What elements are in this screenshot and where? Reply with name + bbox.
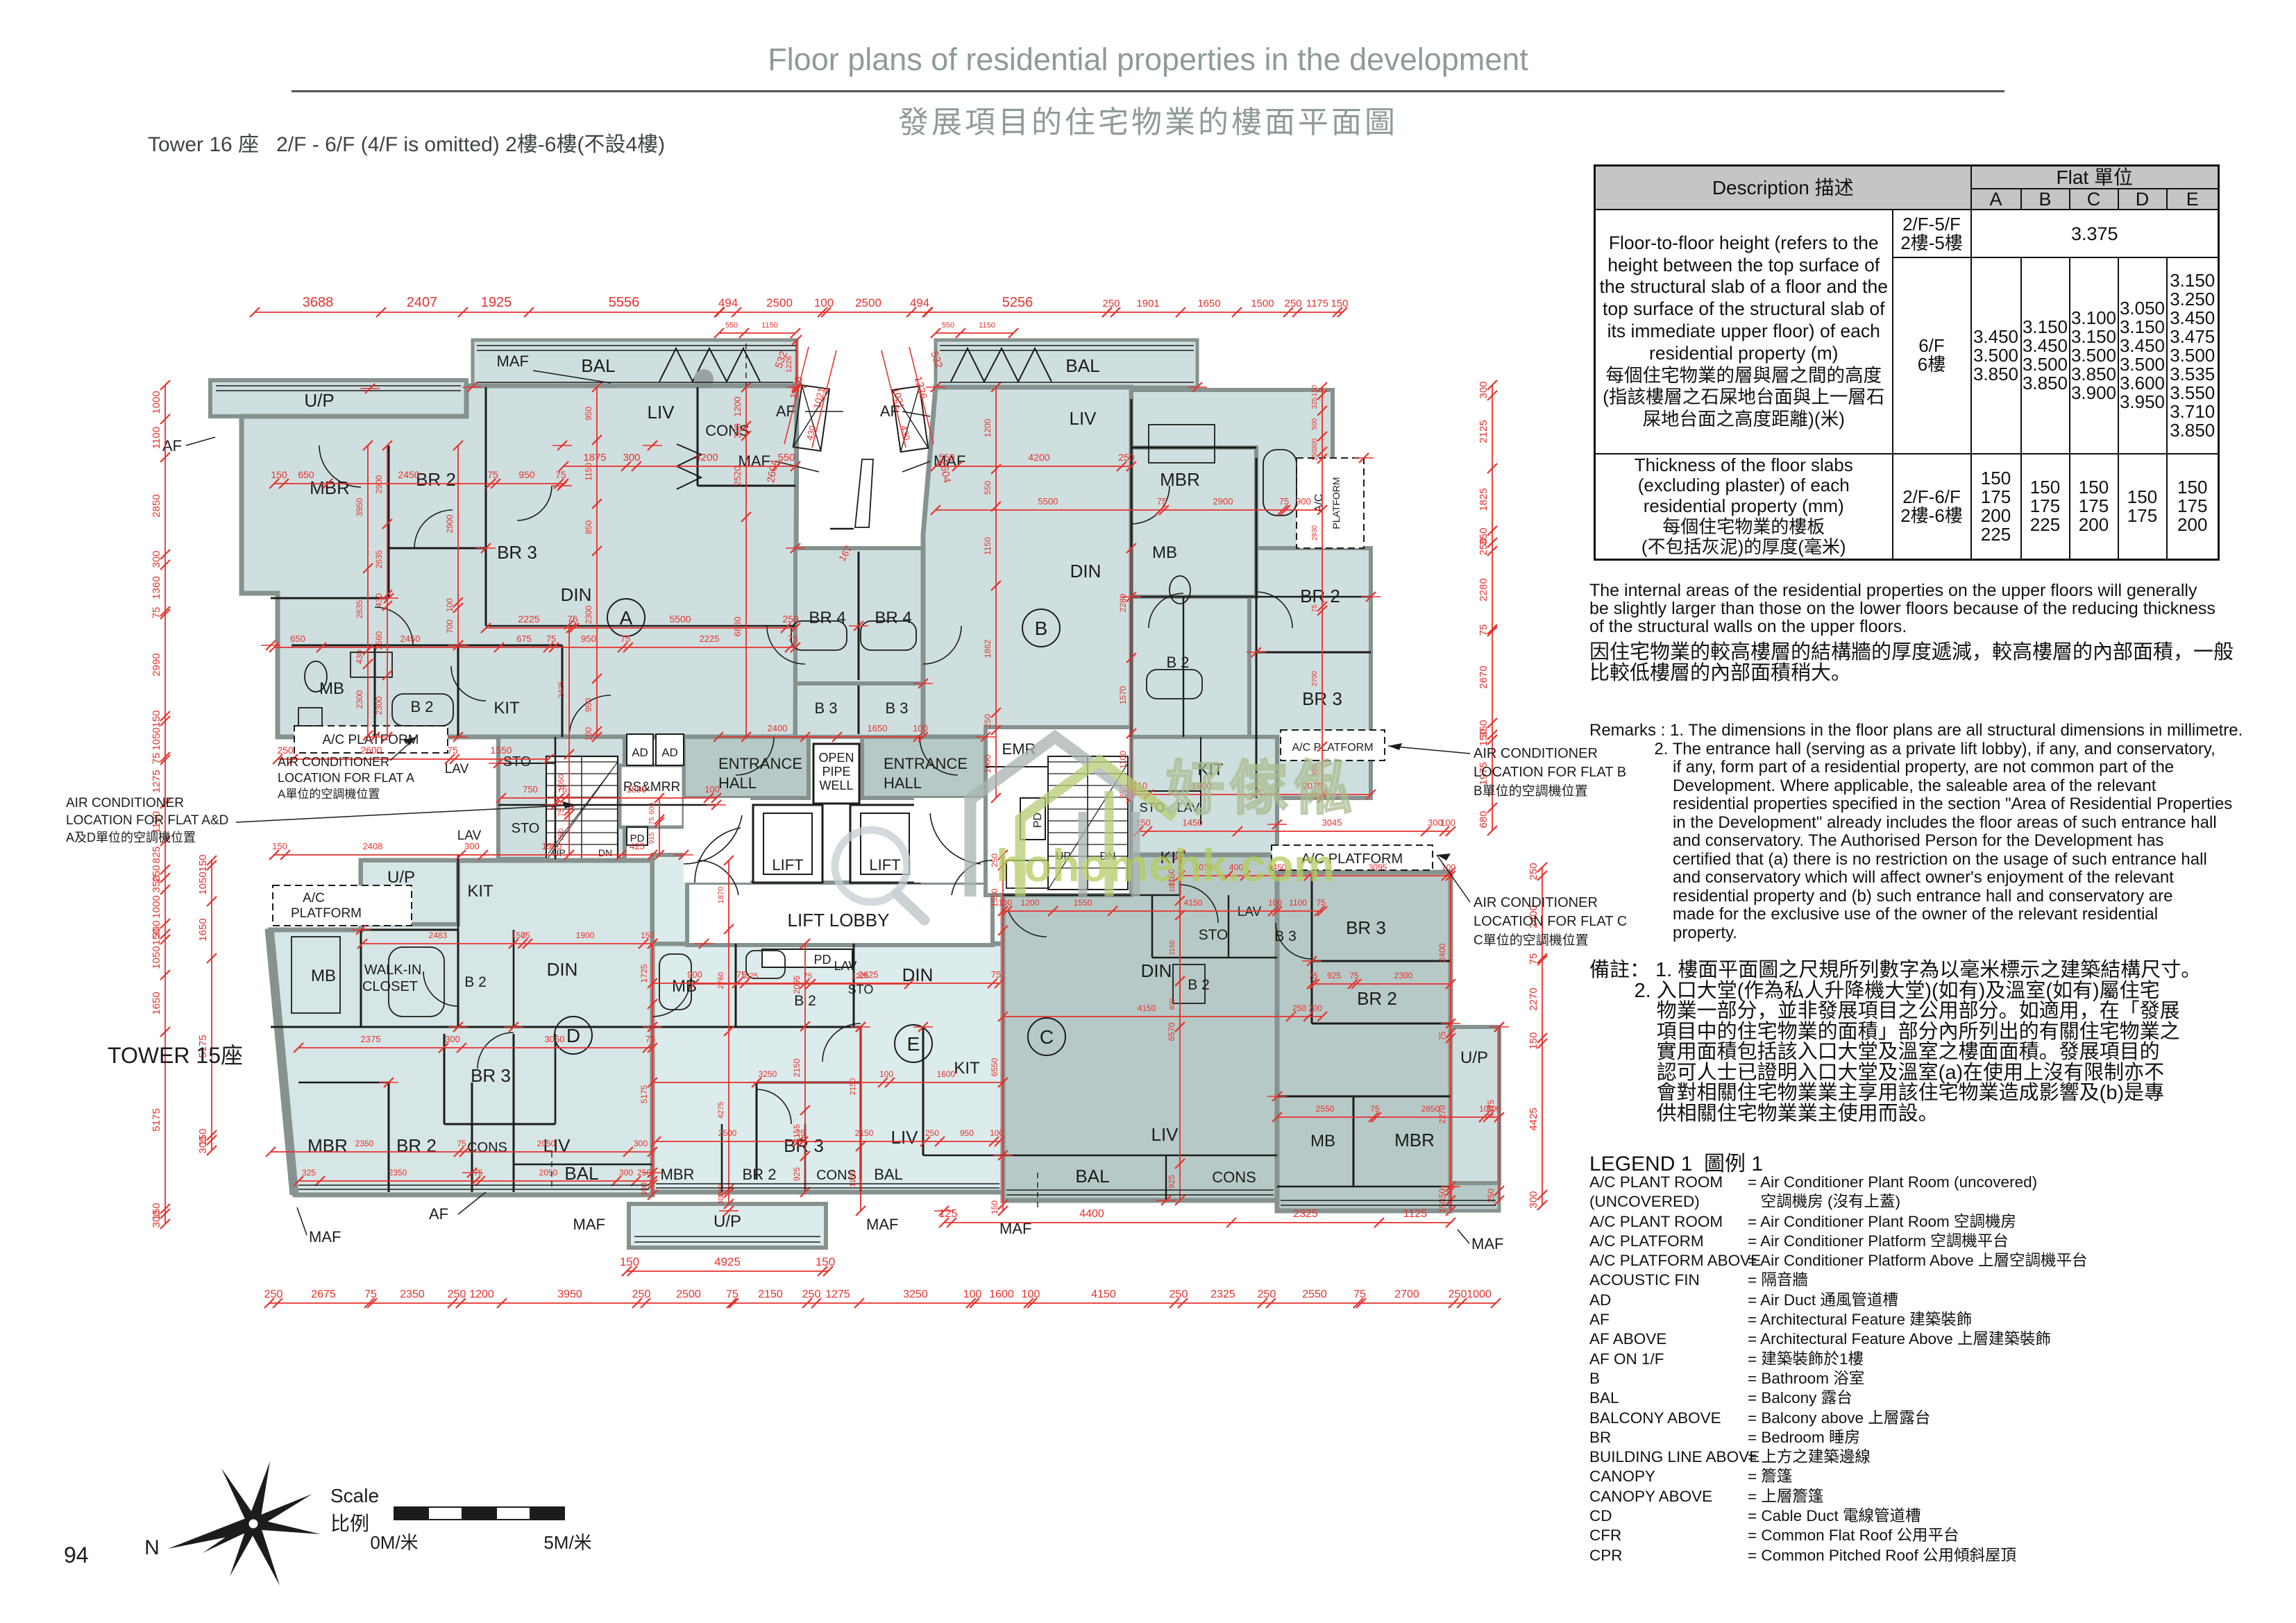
svg-text:94: 94 (64, 1543, 89, 1567)
svg-text:550: 550 (725, 321, 738, 330)
svg-text:DIN: DIN (1141, 960, 1172, 981)
svg-text:2483: 2483 (429, 931, 448, 940)
svg-text:75: 75 (151, 753, 162, 765)
svg-text:2225: 2225 (518, 613, 539, 624)
svg-text:CONS: CONS (467, 1140, 507, 1155)
svg-text:5175: 5175 (639, 1085, 649, 1103)
svg-text:100: 100 (445, 598, 455, 612)
svg-text:CONS: CONS (705, 422, 750, 439)
svg-text:150: 150 (272, 841, 287, 851)
svg-text:MAF: MAF (309, 1228, 341, 1246)
svg-text:AIR CONDITIONER: AIR CONDITIONER (66, 796, 184, 810)
svg-text:3095: 3095 (1369, 863, 1387, 872)
svg-text:915: 915 (648, 832, 656, 844)
svg-text:100: 100 (814, 296, 834, 309)
svg-text:A單位的空調機位置: A單位的空調機位置 (278, 788, 380, 801)
svg-text:750: 750 (557, 829, 566, 841)
svg-text:75: 75 (788, 634, 797, 644)
svg-text:250: 250 (1118, 452, 1135, 463)
svg-text:比例: 比例 (330, 1513, 369, 1534)
svg-text:75: 75 (645, 1034, 655, 1044)
svg-text:A: A (620, 607, 633, 629)
svg-text:2300: 2300 (355, 690, 364, 708)
svg-text:B 2: B 2 (1188, 977, 1210, 993)
svg-text:1900: 1900 (542, 841, 562, 851)
svg-text:325: 325 (1311, 397, 1319, 409)
svg-text:1100: 1100 (1289, 898, 1307, 908)
svg-text:U/P: U/P (1460, 1048, 1488, 1067)
svg-text:5500: 5500 (1038, 496, 1058, 507)
svg-text:2280: 2280 (1478, 578, 1489, 601)
svg-text:75: 75 (1437, 1031, 1447, 1041)
svg-text:2500: 2500 (718, 1128, 737, 1138)
svg-text:950: 950 (518, 469, 535, 480)
svg-text:850: 850 (584, 520, 593, 534)
svg-text:1650: 1650 (197, 918, 209, 941)
svg-text:HALL: HALL (884, 774, 922, 792)
svg-text:4200: 4200 (1028, 452, 1049, 463)
svg-text:2300: 2300 (584, 605, 593, 624)
svg-text:1050: 1050 (151, 946, 162, 969)
svg-text:100: 100 (1022, 1289, 1040, 1300)
svg-text:4275: 4275 (717, 1102, 725, 1119)
svg-text:150: 150 (1331, 298, 1348, 309)
svg-text:150: 150 (641, 931, 655, 940)
svg-text:150: 150 (1478, 729, 1489, 746)
svg-text:1925: 1925 (481, 295, 512, 310)
svg-text:75: 75 (151, 607, 162, 619)
svg-text:2300: 2300 (374, 696, 384, 715)
svg-text:950: 950 (960, 1128, 974, 1138)
svg-text:LOCATION FOR FLAT A: LOCATION FOR FLAT A (278, 771, 414, 785)
svg-text:CONS: CONS (1212, 1169, 1256, 1186)
svg-text:2300: 2300 (1394, 971, 1413, 980)
svg-text:150: 150 (271, 469, 287, 480)
svg-text:75: 75 (648, 817, 656, 825)
svg-text:750: 750 (523, 784, 538, 794)
svg-text:B 3: B 3 (814, 699, 837, 717)
svg-text:100: 100 (704, 784, 720, 794)
svg-text:DIN: DIN (1070, 561, 1101, 581)
svg-text:1870: 1870 (717, 887, 725, 903)
svg-text:2325: 2325 (1293, 1208, 1318, 1220)
svg-text:494: 494 (910, 296, 929, 309)
svg-text:75: 75 (621, 634, 630, 644)
svg-text:4425: 4425 (1528, 1107, 1539, 1130)
svg-text:BAL: BAL (1075, 1166, 1109, 1187)
svg-text:MAF: MAF (1471, 1235, 1503, 1252)
svg-text:150: 150 (151, 710, 162, 727)
svg-text:300: 300 (1478, 381, 1489, 398)
svg-text:1100: 1100 (1118, 751, 1128, 769)
svg-text:150: 150 (990, 1200, 999, 1214)
svg-text:A及D單位的空調機位置: A及D單位的空調機位置 (66, 831, 196, 844)
svg-text:STO: STO (503, 754, 532, 770)
svg-text:75: 75 (447, 745, 458, 756)
svg-text:2675: 2675 (311, 1289, 336, 1300)
svg-text:3950: 3950 (355, 498, 364, 516)
svg-text:MAF: MAF (573, 1216, 605, 1233)
svg-text:1226: 1226 (912, 375, 929, 401)
svg-text:LIV: LIV (1069, 408, 1097, 429)
svg-text:5175: 5175 (151, 1108, 162, 1131)
svg-text:2700: 2700 (1311, 670, 1319, 686)
svg-text:1825: 1825 (1478, 488, 1489, 511)
svg-text:LAV: LAV (1238, 905, 1262, 919)
svg-text:2350: 2350 (355, 1139, 374, 1148)
svg-text:550: 550 (983, 481, 993, 495)
svg-text:DIN: DIN (902, 965, 934, 985)
svg-text:2400: 2400 (1437, 943, 1447, 962)
svg-text:1600: 1600 (989, 1289, 1014, 1300)
svg-text:2550: 2550 (1302, 1289, 1327, 1300)
svg-text:N: N (144, 1536, 160, 1559)
svg-text:Scale: Scale (330, 1485, 379, 1506)
svg-text:350: 350 (151, 875, 162, 892)
svg-text:75: 75 (1157, 496, 1167, 507)
svg-text:2150: 2150 (792, 1058, 802, 1077)
svg-text:650: 650 (298, 469, 314, 480)
svg-text:4200: 4200 (695, 452, 718, 464)
svg-text:STO: STO (848, 983, 874, 996)
svg-text:100: 100 (998, 898, 1012, 908)
svg-text:300: 300 (623, 452, 640, 464)
svg-text:TOWER 15座: TOWER 15座 (108, 1043, 243, 1068)
svg-text:925: 925 (1167, 1175, 1176, 1189)
svg-text:250: 250 (1478, 538, 1489, 555)
svg-text:1150: 1150 (983, 537, 993, 555)
svg-text:950: 950 (581, 634, 596, 644)
svg-text:1600: 1600 (937, 1069, 956, 1079)
svg-text:1150: 1150 (979, 321, 995, 330)
svg-text:1125: 1125 (1403, 1208, 1428, 1220)
svg-text:LAV: LAV (445, 762, 469, 776)
svg-text:675: 675 (516, 634, 532, 644)
svg-text:WALK-IN: WALK-IN (364, 962, 422, 978)
svg-text:BR 2: BR 2 (743, 1166, 777, 1183)
svg-text:1050: 1050 (197, 872, 209, 894)
svg-text:WELL: WELL (819, 779, 853, 792)
svg-text:1650: 1650 (151, 992, 162, 1014)
svg-text:75: 75 (1311, 604, 1319, 613)
svg-text:150: 150 (1311, 449, 1319, 461)
svg-text:75: 75 (546, 634, 556, 644)
svg-text:2150: 2150 (758, 1289, 783, 1300)
svg-text:1150: 1150 (1169, 940, 1176, 955)
svg-text:2375: 2375 (361, 1034, 381, 1044)
svg-text:2150: 2150 (855, 1128, 874, 1138)
svg-text:300: 300 (1528, 1191, 1539, 1208)
svg-text:430: 430 (355, 650, 364, 664)
svg-text:2500: 2500 (676, 1289, 701, 1300)
svg-text:2450: 2450 (400, 634, 421, 644)
svg-text:75: 75 (1308, 971, 1318, 980)
svg-text:1100: 1100 (151, 427, 162, 449)
svg-text:1650: 1650 (1197, 298, 1220, 309)
svg-text:4150: 4150 (1184, 898, 1203, 908)
svg-text:700: 700 (445, 620, 455, 634)
svg-text:BR 3: BR 3 (784, 1135, 824, 1156)
svg-text:3950: 3950 (557, 1289, 582, 1300)
svg-text:AD: AD (661, 746, 678, 759)
svg-text:650: 650 (290, 634, 305, 644)
svg-text:430: 430 (374, 593, 384, 607)
svg-text:2500: 2500 (855, 296, 881, 309)
svg-text:1200: 1200 (1021, 898, 1040, 908)
svg-text:75: 75 (555, 469, 566, 480)
svg-text:E: E (907, 1033, 920, 1055)
svg-text:2700: 2700 (1394, 1289, 1419, 1300)
svg-text:250: 250 (802, 1289, 821, 1300)
svg-text:2050: 2050 (539, 1168, 558, 1178)
svg-text:CLOSET: CLOSET (362, 979, 418, 994)
svg-text:4150: 4150 (1091, 1289, 1116, 1300)
svg-text:250: 250 (632, 1289, 651, 1300)
svg-text:75: 75 (557, 808, 566, 817)
svg-text:200: 200 (1308, 1003, 1322, 1013)
svg-text:75: 75 (567, 613, 578, 624)
svg-text:2635: 2635 (355, 600, 364, 618)
svg-text:925: 925 (792, 1167, 802, 1181)
svg-text:4925: 4925 (714, 1255, 741, 1268)
svg-text:2325: 2325 (1210, 1289, 1235, 1300)
svg-text:A/C PLATFORM: A/C PLATFORM (1292, 742, 1373, 754)
svg-text:300: 300 (445, 1034, 460, 1044)
svg-text:3688: 3688 (303, 295, 334, 310)
svg-text:6550: 6550 (990, 1057, 999, 1076)
svg-text:2450: 2450 (398, 469, 419, 480)
svg-text:100: 100 (1268, 898, 1282, 908)
svg-text:1000: 1000 (151, 895, 162, 918)
svg-text:OPEN: OPEN (818, 751, 854, 765)
svg-text:B 2: B 2 (1166, 654, 1189, 671)
svg-text:BAL: BAL (1065, 355, 1099, 376)
svg-text:75: 75 (1353, 1289, 1366, 1300)
svg-text:MAF: MAF (866, 1216, 898, 1233)
svg-text:100: 100 (584, 727, 593, 741)
svg-text:900: 900 (687, 969, 702, 980)
svg-text:HALL: HALL (718, 774, 757, 792)
svg-text:2900: 2900 (445, 514, 455, 533)
svg-text:MBR: MBR (307, 1135, 348, 1156)
svg-text:BR 4: BR 4 (875, 609, 911, 627)
svg-text:250: 250 (1292, 1003, 1306, 1013)
svg-text:925: 925 (1327, 971, 1341, 980)
svg-text:LIV: LIV (890, 1127, 918, 1148)
svg-text:680: 680 (1478, 810, 1489, 828)
svg-text:好傢俬: 好傢俬 (1165, 756, 1358, 821)
svg-text:2560: 2560 (374, 631, 384, 649)
svg-text:2930: 2930 (1311, 525, 1319, 541)
svg-text:BR 2: BR 2 (1357, 988, 1397, 1009)
svg-text:AD: AD (632, 746, 648, 759)
svg-text:MBR: MBR (661, 1166, 695, 1183)
svg-text:LIFT: LIFT (772, 856, 803, 874)
svg-text:150: 150 (1528, 1032, 1539, 1049)
svg-text:1550: 1550 (490, 745, 512, 756)
svg-text:250: 250 (1170, 1289, 1188, 1300)
svg-text:1550: 1550 (990, 888, 999, 907)
svg-text:250: 250 (277, 745, 294, 756)
svg-text:75: 75 (1316, 898, 1326, 908)
svg-text:550: 550 (942, 321, 954, 330)
svg-text:1021: 1021 (811, 386, 827, 409)
svg-text:AIR CONDITIONER: AIR CONDITIONER (278, 755, 389, 769)
svg-text:100: 100 (990, 1128, 1004, 1138)
svg-text:1900: 1900 (576, 931, 595, 940)
svg-text:1175: 1175 (1306, 298, 1328, 309)
svg-text:LIFT: LIFT (869, 856, 900, 874)
svg-text:2225: 2225 (700, 634, 720, 644)
svg-text:PLATFORM: PLATFORM (1331, 477, 1342, 529)
svg-text:1050: 1050 (151, 727, 162, 750)
svg-text:600: 600 (648, 802, 656, 814)
svg-text:300: 300 (619, 1168, 633, 1178)
svg-text:2408: 2408 (363, 841, 383, 851)
svg-text:MB: MB (1310, 1132, 1335, 1150)
svg-text:LOCATION FOR FLAT A&D: LOCATION FOR FLAT A&D (66, 813, 228, 828)
svg-text:430: 430 (898, 424, 912, 441)
svg-text:500: 500 (1311, 418, 1319, 430)
svg-text:2900: 2900 (1213, 496, 1233, 507)
svg-text:B 2: B 2 (410, 698, 433, 715)
svg-text:U/P: U/P (387, 868, 415, 887)
svg-text:2990: 2990 (151, 653, 162, 676)
svg-text:75: 75 (1478, 624, 1489, 636)
svg-text:325: 325 (302, 1168, 316, 1178)
svg-text:2270: 2270 (1437, 1105, 1447, 1123)
svg-text:150: 150 (1437, 1199, 1447, 1213)
svg-text:1000: 1000 (151, 391, 162, 414)
svg-text:2600: 2600 (360, 745, 382, 756)
svg-text:250: 250 (1528, 863, 1539, 880)
svg-text:300: 300 (732, 423, 743, 439)
svg-text:100: 100 (913, 723, 928, 733)
svg-text:MAF: MAF (497, 352, 529, 370)
svg-text:5500: 5500 (669, 613, 691, 624)
svg-text:3050: 3050 (545, 1034, 565, 1044)
svg-text:U/P: U/P (304, 390, 334, 411)
svg-text:B單位的空調機位置: B單位的空調機位置 (1474, 783, 1588, 799)
svg-text:75: 75 (364, 1289, 377, 1300)
svg-text:75: 75 (991, 969, 1001, 980)
svg-text:DN: DN (598, 847, 612, 858)
svg-text:PIPE: PIPE (822, 765, 850, 779)
svg-text:75: 75 (487, 469, 498, 480)
svg-text:825: 825 (151, 846, 162, 863)
svg-text:B: B (1035, 618, 1048, 639)
svg-text:1725: 1725 (639, 964, 649, 983)
svg-text:100: 100 (963, 1289, 982, 1300)
svg-text:LIV: LIV (1151, 1124, 1179, 1145)
svg-text:250: 250 (448, 1289, 466, 1300)
svg-text:6830: 6830 (732, 617, 743, 637)
svg-text:1200: 1200 (732, 397, 743, 417)
svg-text:PD: PD (813, 953, 831, 967)
svg-text:250: 250 (983, 714, 993, 728)
svg-text:250: 250 (925, 1128, 939, 1138)
svg-text:75: 75 (457, 1139, 466, 1148)
svg-text:300: 300 (634, 1139, 648, 1148)
svg-text:B 2: B 2 (464, 974, 487, 990)
svg-text:4175: 4175 (1486, 1099, 1496, 1118)
svg-text:DIN: DIN (547, 959, 578, 980)
svg-text:2500: 2500 (766, 296, 793, 309)
svg-text:MBR: MBR (1160, 469, 1200, 490)
svg-text:100: 100 (879, 1069, 893, 1079)
svg-text:250: 250 (1102, 298, 1120, 309)
svg-text:2670: 2670 (1478, 665, 1489, 688)
svg-text:BR 3: BR 3 (497, 542, 537, 563)
svg-text:hohomehk.com: hohomehk.com (996, 840, 1335, 891)
svg-text:494: 494 (718, 296, 738, 309)
svg-text:MAF: MAF (738, 452, 770, 470)
svg-text:2425: 2425 (557, 681, 566, 698)
svg-text:1862: 1862 (983, 639, 993, 658)
svg-text:MBR: MBR (1394, 1130, 1435, 1150)
svg-text:300: 300 (151, 1210, 162, 1227)
svg-text:BR 2: BR 2 (396, 1135, 437, 1156)
svg-text:2050: 2050 (537, 1139, 556, 1148)
svg-text:BR 2: BR 2 (1300, 586, 1340, 606)
svg-text:2350: 2350 (400, 1289, 425, 1300)
svg-text:250: 250 (782, 613, 799, 624)
svg-text:DIN: DIN (561, 584, 592, 605)
svg-text:300: 300 (1311, 438, 1319, 450)
svg-text:300: 300 (197, 1136, 209, 1153)
svg-text:2635: 2635 (374, 550, 384, 568)
svg-text:U/P: U/P (714, 1212, 741, 1231)
svg-text:75: 75 (1370, 1104, 1380, 1114)
svg-text:2407: 2407 (407, 295, 438, 310)
svg-text:MB: MB (672, 977, 697, 996)
svg-text:KIT: KIT (954, 1059, 980, 1078)
svg-text:1000: 1000 (1467, 1289, 1492, 1300)
svg-text:LIFT LOBBY: LIFT LOBBY (788, 910, 890, 931)
svg-text:AIR CONDITIONER: AIR CONDITIONER (1474, 746, 1598, 761)
svg-text:1275: 1275 (151, 770, 162, 792)
svg-text:3250: 3250 (903, 1289, 928, 1300)
svg-text:BR 3: BR 3 (1346, 917, 1386, 938)
svg-text:1550: 1550 (1074, 898, 1092, 908)
svg-text:1275: 1275 (825, 1289, 850, 1300)
svg-text:KIT: KIT (493, 699, 520, 717)
svg-text:75: 75 (521, 931, 530, 940)
svg-text:1150: 1150 (761, 321, 778, 330)
svg-text:C單位的空調機位置: C單位的空調機位置 (1474, 933, 1589, 948)
svg-text:0M/米: 0M/米 (370, 1532, 418, 1553)
svg-text:250: 250 (1449, 1289, 1467, 1300)
svg-text:300: 300 (151, 550, 162, 568)
svg-text:2150: 2150 (849, 1078, 857, 1095)
svg-text:1155: 1155 (849, 1171, 857, 1187)
svg-text:5M/米: 5M/米 (543, 1532, 591, 1553)
svg-text:800: 800 (1169, 998, 1176, 1010)
svg-text:150: 150 (197, 854, 209, 872)
svg-text:C: C (1040, 1026, 1054, 1048)
svg-text:MB: MB (1152, 543, 1177, 562)
svg-text:2270: 2270 (1528, 987, 1539, 1010)
svg-text:1000: 1000 (983, 754, 993, 773)
svg-text:2760: 2760 (717, 972, 725, 989)
svg-text:950: 950 (584, 698, 593, 712)
svg-text:BAL: BAL (874, 1166, 903, 1183)
svg-text:2550: 2550 (1316, 1104, 1335, 1114)
svg-text:2900: 2900 (374, 475, 384, 493)
svg-text:AIR CONDITIONER: AIR CONDITIONER (1474, 895, 1598, 910)
svg-text:150: 150 (620, 1255, 639, 1268)
svg-text:STO: STO (1199, 927, 1229, 943)
